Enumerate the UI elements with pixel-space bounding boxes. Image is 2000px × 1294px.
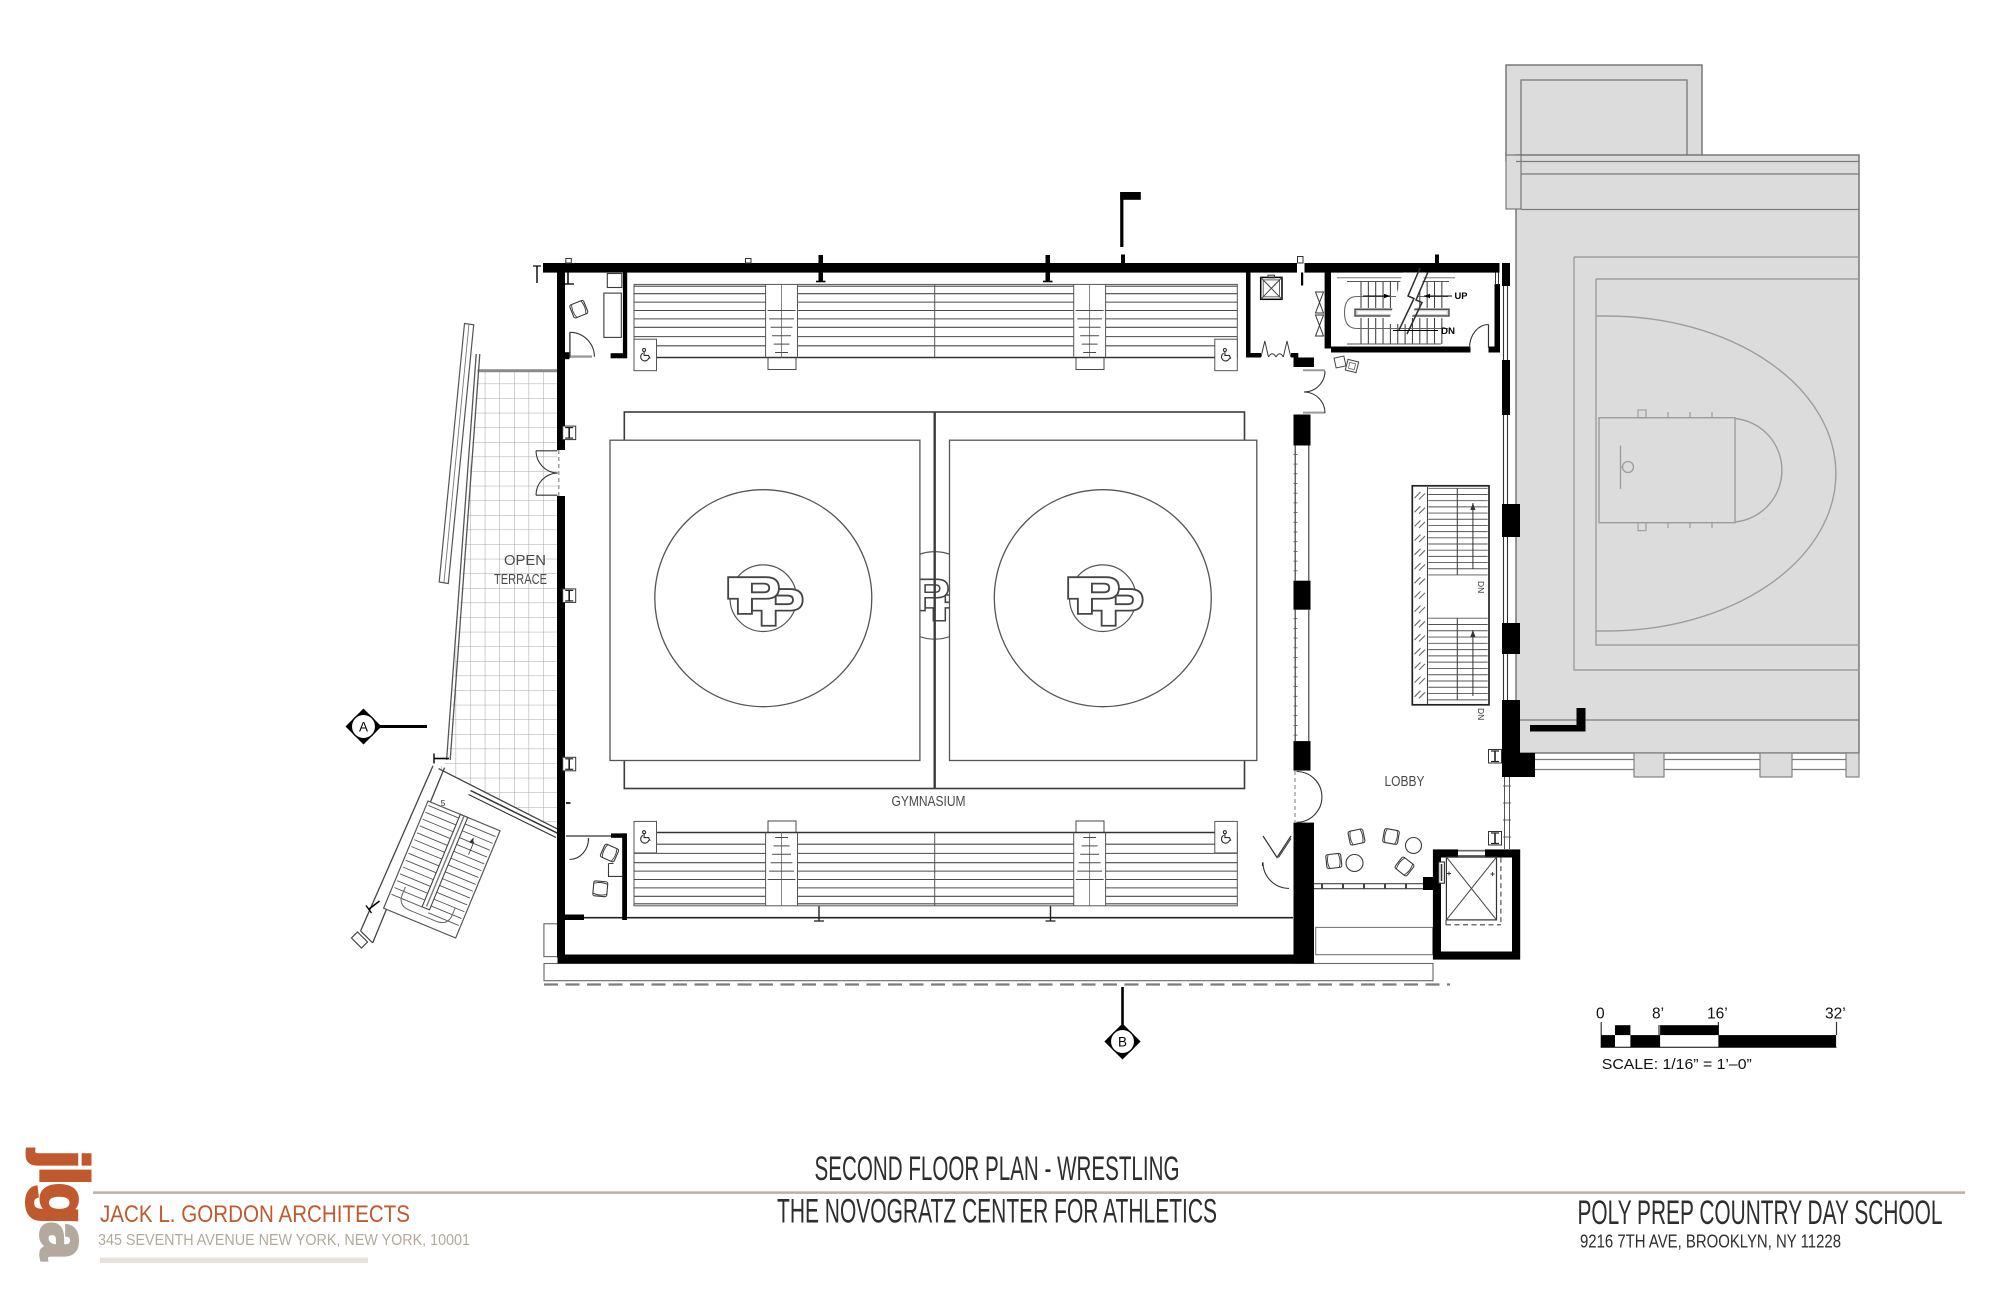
svg-text:DN: DN (1476, 581, 1486, 593)
svg-text:16’: 16’ (1707, 1006, 1728, 1023)
svg-text:jlga: jlga (26, 1148, 102, 1261)
svg-text:B: B (1118, 1035, 1127, 1050)
svg-text:0: 0 (1596, 1006, 1605, 1023)
svg-text:A: A (359, 720, 368, 735)
svg-text:DN: DN (1441, 326, 1455, 336)
svg-text:8’: 8’ (1652, 1006, 1664, 1023)
svg-text:UP: UP (1455, 291, 1468, 301)
svg-text:DN: DN (1476, 708, 1486, 720)
svg-text:JACK L. GORDON ARCHITECTS: JACK L. GORDON ARCHITECTS (100, 1201, 410, 1228)
svg-text:32’: 32’ (1825, 1006, 1846, 1023)
svg-text:345 SEVENTH AVENUE NEW YORK, N: 345 SEVENTH AVENUE NEW YORK, NEW YORK, 1… (98, 1232, 470, 1249)
svg-text:THE NOVOGRATZ CENTER FOR ATHLE: THE NOVOGRATZ CENTER FOR ATHLETICS (777, 1193, 1217, 1231)
svg-text:OPEN: OPEN (504, 553, 546, 569)
svg-text:5: 5 (441, 799, 446, 808)
svg-text:9216 7TH AVE, BROOKLYN, NY 112: 9216 7TH AVE, BROOKLYN, NY 11228 (1580, 1232, 1841, 1252)
svg-text:GYMNASIUM: GYMNASIUM (892, 794, 966, 810)
svg-text:POLY PREP COUNTRY DAY SCHOOL: POLY PREP COUNTRY DAY SCHOOL (1578, 1194, 1943, 1232)
svg-text:TERRACE: TERRACE (494, 572, 547, 588)
svg-text:SCALE: 1/16” = 1’–0”: SCALE: 1/16” = 1’–0” (1602, 1056, 1752, 1073)
svg-text:SECOND FLOOR PLAN - WRESTLING: SECOND FLOOR PLAN - WRESTLING (815, 1150, 1180, 1188)
svg-text:LOBBY: LOBBY (1385, 774, 1425, 790)
